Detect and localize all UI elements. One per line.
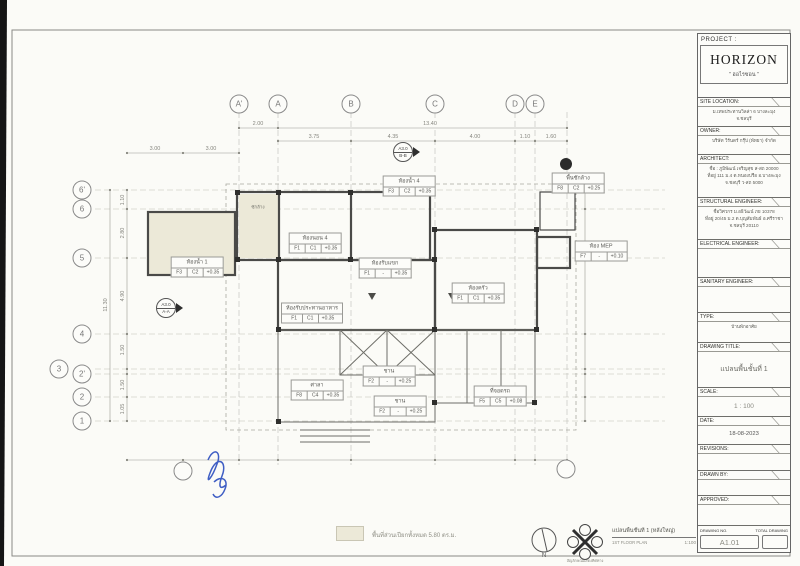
grid-bubble-3: 3 (50, 360, 69, 379)
tb-section-electrical-engineer: ELECTRICAL ENGINEER: (698, 240, 790, 278)
dimension-label: 1.10 (120, 194, 126, 207)
room-tag: พื้นซักล้างF8C2+0.25 (552, 173, 605, 194)
section-marker-a-a: A3.0A-A (156, 298, 176, 318)
tb-section-sanitary-engineer: SANITARY ENGINEER: (698, 278, 790, 313)
grid-bubble-Ap: A' (230, 95, 249, 114)
room-name: ห้องรับแขก (359, 258, 412, 270)
room-tag: ห้องรับแขกF1-+0.35 (359, 258, 412, 279)
tb-section-content (698, 454, 790, 458)
room-finish-cells: F5C5+0.08 (474, 398, 527, 407)
room-name: ห้องนอน 4 (289, 233, 342, 245)
room-tag: ห้องรับประทานอาหารF1C1+0.35 (281, 303, 343, 324)
plan-title-scale: 1:100 (685, 540, 697, 545)
tb-section-label: SCALE: (698, 388, 790, 397)
section-arrow-icon (176, 303, 183, 313)
legend-swatch (336, 526, 364, 541)
tb-section-label: TYPE: (698, 313, 790, 322)
tb-section-content (698, 287, 790, 291)
tb-section-label: ELECTRICAL ENGINEER: (698, 240, 790, 249)
dimension-label: 3.75 (308, 134, 321, 140)
tb-section-label: REVISIONS: (698, 445, 790, 454)
room-tag: ห้องน้ำ 1F3C2+0.35 (171, 257, 224, 278)
plan-note: ซักล้าง (251, 204, 264, 211)
dimension-label: 2.80 (120, 227, 126, 240)
north-arrow-icon (532, 528, 556, 552)
tb-section-date: DATE:18-08-2023 (698, 417, 790, 445)
room-finish-cells: F8C4+0.35 (291, 392, 344, 401)
section-marker-b-b: A3.0B-B (393, 142, 413, 162)
tb-section-owner: OWNER:บริษัท วีรันดร์ กรุ๊ป (พัทยา) จำกั… (698, 127, 790, 155)
project-name: HORIZON (702, 52, 786, 68)
room-tag: ที่จอดรถF5C5+0.08 (474, 386, 527, 407)
room-tag: ห้อง MEPF7-+0.10 (575, 241, 628, 262)
tb-section-drawing-title: DRAWING TITLE:แปลนพื้นชั้นที่ 1 (698, 343, 790, 388)
tb-section-scale: SCALE:1 : 100 (698, 388, 790, 417)
tb-section-label: DATE: (698, 417, 790, 426)
room-name: ห้องน้ำ 4 (383, 176, 436, 188)
room-finish-cells: F2-+0.25 (363, 378, 416, 387)
floor-plan-linework (0, 0, 800, 566)
grid-bubble (174, 462, 193, 481)
tb-section-content: บ้านพักอาศัย (698, 322, 790, 333)
room-tag: ชานF2-+0.25 (363, 366, 416, 387)
tb-section-label: SITE LOCATION: (698, 98, 790, 107)
project-label: PROJECT : (700, 36, 788, 45)
drawing-no-value: A1.01 (700, 535, 759, 549)
tb-section-label: DRAWN BY: (698, 471, 790, 480)
title-block: PROJECT : HORIZON " ฮอไรซอน " SITE LOCAT… (697, 33, 791, 553)
tb-section-content: 18-08-2023 (698, 426, 790, 441)
dimension-label: 1.10 (519, 134, 532, 140)
grid-bubble-2: 2 (73, 388, 92, 407)
grid-bubble-5: 5 (73, 249, 92, 268)
level-triangles (368, 293, 456, 300)
tb-section-label: OWNER: (698, 127, 790, 136)
room-finish-cells: F1C1+0.35 (452, 295, 505, 304)
room-finish-cells: F1C1+0.35 (289, 245, 342, 254)
room-name: ห้อง MEP (575, 241, 628, 253)
grid-bubble-A: A (269, 95, 288, 114)
room-name: พื้นซักล้าง (552, 173, 605, 185)
scan-edge (0, 0, 7, 566)
tb-section-site-location: SITE LOCATION:ม.เทพประทานวิลล่า 6 บางละม… (698, 98, 790, 127)
legend-text: พื้นที่ส่วนเปียกทั้งหมด 5.80 ตร.ม. (372, 530, 456, 540)
room-name: ชาน (363, 366, 416, 378)
plan-title: แปลนพื้นชั้นที่ 1 (หลังใหญ่) 1ST FLOOR P… (612, 527, 696, 545)
column-tag (560, 158, 572, 170)
dimension-label: 1.50 (120, 379, 126, 392)
drawing-sheet: A'ABCDE6'65432'21 ห้องน้ำ 4F3C2+0.35พื้น… (0, 0, 800, 566)
room-finish-cells: F7-+0.10 (575, 253, 628, 262)
tb-section-content: ชื่อ : ภูมิพัฒน์ เจริญสุข ส-สถ 20000ที่อ… (698, 164, 790, 189)
tb-section-content: บริษัท วีรันดร์ กรุ๊ป (พัทยา) จำกัด (698, 136, 790, 147)
tb-section-structural-engineer: STRUCTURAL ENGINEER:ชื่อวิศวกร ม.อธิวัฒน… (698, 198, 790, 240)
total-drawing-box (762, 535, 788, 549)
room-name: ห้องครัว (452, 283, 505, 295)
compass-icon (568, 525, 603, 560)
grid-bubble (557, 460, 576, 479)
tb-section-content: แปลนพื้นชั้นที่ 1 (698, 352, 790, 378)
room-name: ห้องรับประทานอาหาร (281, 303, 343, 315)
dimension-label: 4.00 (469, 134, 482, 140)
north-label: N (542, 553, 546, 559)
grid-bubble-6: 6 (73, 200, 92, 219)
tb-section-label: DRAWING TITLE: (698, 343, 790, 352)
tb-section-architect: ARCHITECT:ชื่อ : ภูมิพัฒน์ เจริญสุข ส-สถ… (698, 155, 790, 198)
grid-bubble-D: D (506, 95, 525, 114)
room-name: ศาลา (291, 380, 344, 392)
tb-section-content (698, 505, 790, 509)
grid-bubble-C: C (426, 95, 445, 114)
room-tag: ศาลาF8C4+0.35 (291, 380, 344, 401)
dimension-lines (109, 127, 586, 461)
grid-bubble-1: 1 (73, 412, 92, 431)
grid-bubble-6p: 6' (73, 181, 92, 200)
room-finish-cells: F1-+0.35 (359, 270, 412, 279)
room-name: ห้องน้ำ 1 (171, 257, 224, 269)
tb-section-content (698, 249, 790, 253)
tb-section-content: ชื่อวิศวกร ม.อธิวัฒน์ ภย 10378ที่อยู่ 20… (698, 207, 790, 232)
grid-bubble-4: 4 (73, 325, 92, 344)
room-finish-cells: F2-+0.25 (374, 408, 427, 417)
project-name-thai: " ฮอไรซอน " (702, 71, 786, 79)
project-name-box: HORIZON " ฮอไรซอน " (700, 45, 788, 84)
section-arrow-icon (413, 147, 420, 157)
grid-bubble-2p: 2' (73, 365, 92, 384)
tb-section-content: 1 : 100 (698, 397, 790, 414)
room-finish-cells: F1C1+0.35 (281, 315, 343, 324)
room-finish-cells: F3C2+0.35 (383, 188, 436, 197)
dimension-label: 11.30 (103, 297, 109, 312)
compass-caption: สัญลักษณ์แสดงทิศทาง (567, 558, 604, 564)
grid-bubble-E: E (526, 95, 545, 114)
plan-title-thai: แปลนพื้นชั้นที่ 1 (หลังใหญ่) (612, 527, 696, 538)
dimension-label: 1.60 (545, 134, 558, 140)
dimension-label: 4.35 (387, 134, 400, 140)
signature (208, 452, 226, 497)
tb-section-label: SANITARY ENGINEER: (698, 278, 790, 287)
room-tag: ห้องครัวF1C1+0.35 (452, 283, 505, 304)
room-finish-cells: F3C2+0.35 (171, 269, 224, 278)
dimension-label: 4.90 (120, 290, 126, 303)
tb-section-label: APPROVED: (698, 496, 790, 505)
drawing-no-label: DRAWING NO. (700, 528, 727, 533)
tb-section-drawn-by: DRAWN BY: (698, 471, 790, 496)
room-finish-cells: F8C2+0.25 (552, 185, 605, 194)
tb-section-label: STRUCTURAL ENGINEER: (698, 198, 790, 207)
tb-section-content (698, 480, 790, 484)
tb-section-label: ARCHITECT: (698, 155, 790, 164)
tb-footer: DRAWING NO. TOTAL DRAWING A1.01 (698, 526, 790, 552)
dimension-label: 1.05 (120, 403, 126, 416)
dimension-label: 1.50 (120, 344, 126, 357)
dimension-label: 13.40 (422, 121, 438, 127)
dimension-label: 3.00 (149, 146, 162, 152)
dimension-label: 3.00 (205, 146, 218, 152)
grid-bubble-B: B (342, 95, 361, 114)
plan-title-eng: 1ST FLOOR PLAN (612, 540, 647, 545)
total-drawing-label: TOTAL DRAWING (755, 528, 788, 533)
tb-project-section: PROJECT : HORIZON " ฮอไรซอน " (698, 34, 790, 98)
room-name: ที่จอดรถ (474, 386, 527, 398)
room-tag: ห้องนอน 4F1C1+0.35 (289, 233, 342, 254)
sheet-border (12, 30, 790, 556)
dimension-label: 2.00 (252, 121, 265, 127)
tb-section-approved: APPROVED: (698, 496, 790, 526)
room-tag: ห้องน้ำ 4F3C2+0.35 (383, 176, 436, 197)
tb-section-revisions: REVISIONS: (698, 445, 790, 471)
room-tag: ชานF2-+0.25 (374, 396, 427, 417)
room-name: ชาน (374, 396, 427, 408)
tb-section-content: ม.เทพประทานวิลล่า 6 บางละมุงจ.ชลบุรี (698, 107, 790, 125)
tb-section-type: TYPE:บ้านพักอาศัย (698, 313, 790, 343)
